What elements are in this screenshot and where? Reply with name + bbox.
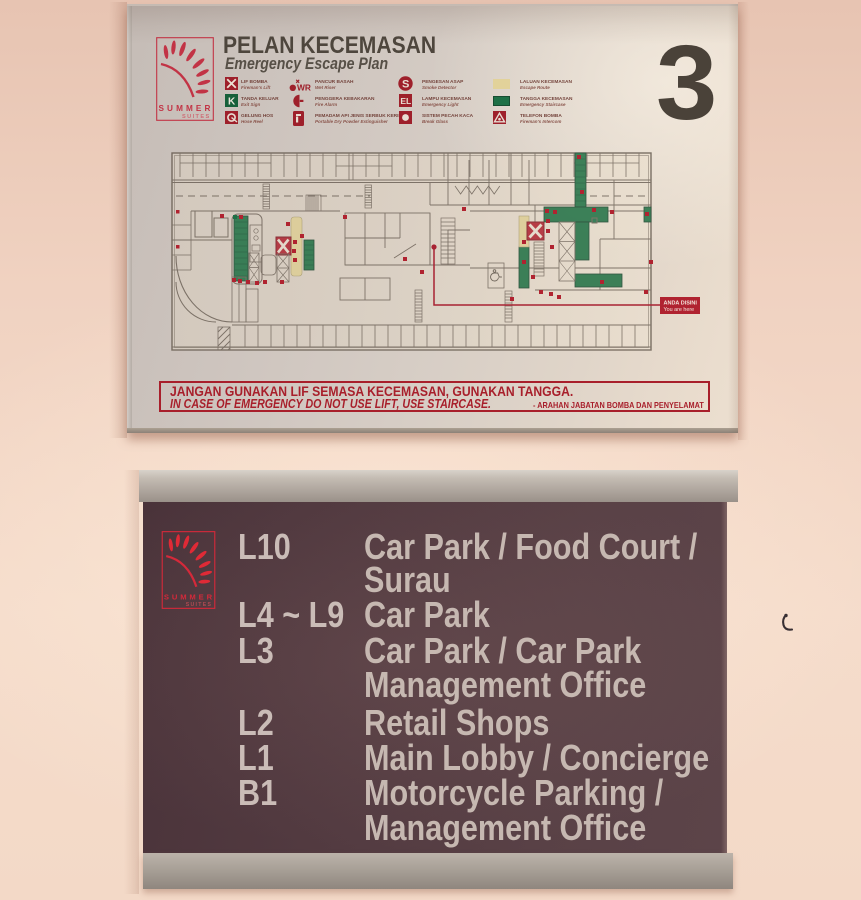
svg-text:ANDA DISINI: ANDA DISINI	[664, 301, 698, 307]
svg-text:EL: EL	[400, 96, 411, 106]
svg-text:K: K	[228, 97, 236, 108]
svg-text:You are here: You are here	[664, 307, 695, 313]
svg-text:WR: WR	[297, 83, 311, 93]
svg-text:S: S	[402, 79, 409, 91]
